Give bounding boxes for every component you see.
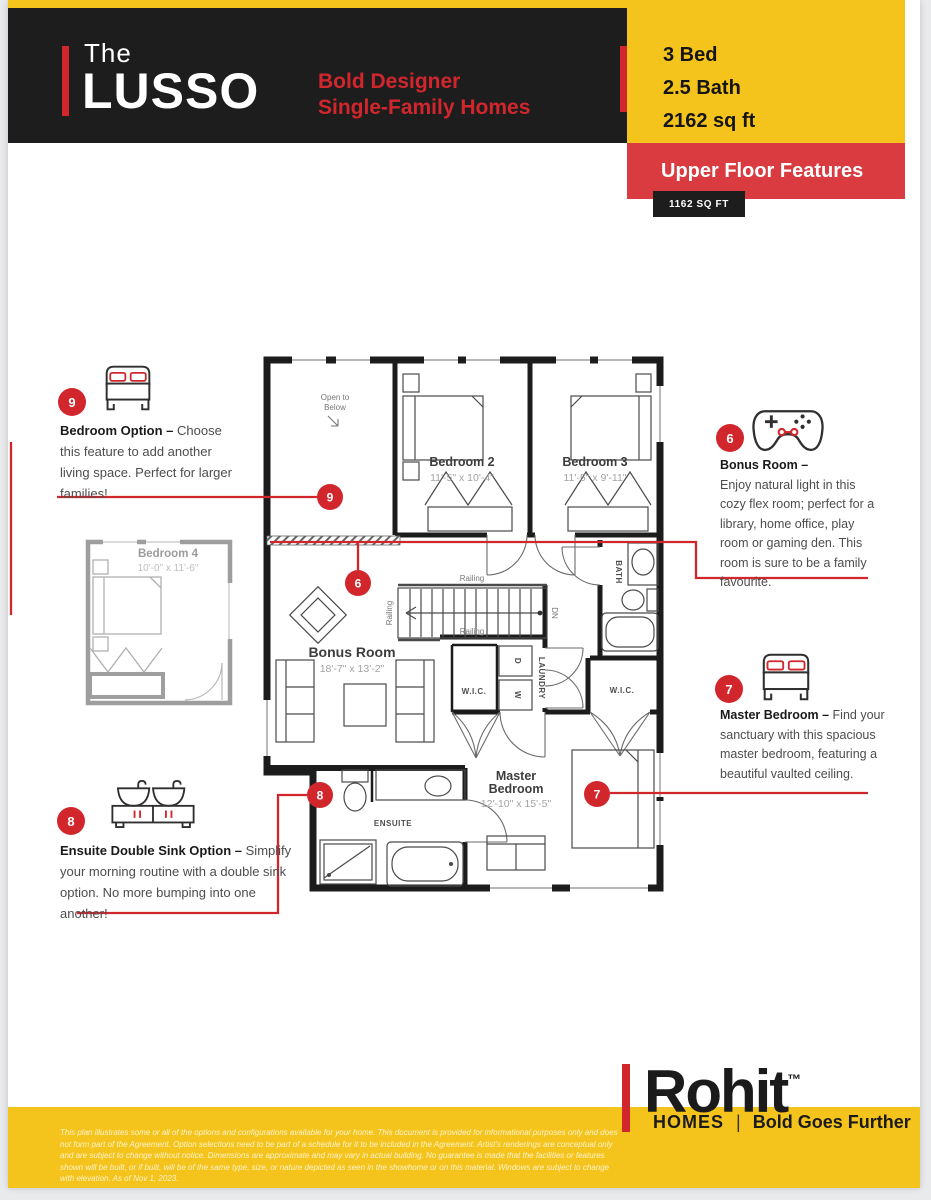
ensuite-label: ENSUITE: [374, 819, 412, 828]
master-dims: 12'-10" x 15'-5": [481, 798, 552, 810]
callout-8-badge: 8: [57, 807, 85, 835]
logo-divider: |: [736, 1112, 741, 1133]
bedroom4-label: Bedroom 4: [138, 548, 199, 560]
floor-sqft-value: 1162 SQ FT: [669, 199, 729, 210]
tagline-line-1: Bold Designer: [318, 69, 530, 95]
marker-9: 9: [327, 491, 334, 505]
spec-box: 3 Bed 2.5 Bath 2162 sq ft: [627, 5, 905, 143]
callout-7-badge: 7: [715, 675, 743, 703]
callout-6-badge: 6: [716, 424, 744, 452]
callout-9-title: Bedroom Option –: [60, 423, 173, 438]
bonus-dims: 18'-7" x 13'-2": [320, 663, 385, 675]
bedroom2-dims: 11'-5" x 10'-4": [430, 472, 494, 484]
brand-tagline: Bold Designer Single-Family Homes: [318, 69, 530, 121]
marker-8: 8: [317, 789, 324, 803]
section-title: Upper Floor Features: [661, 160, 863, 183]
bed-icon: [755, 652, 817, 702]
bedroom4-dims: 10'-0" x 11'-6": [138, 563, 199, 574]
railing-left-label: Railing: [385, 601, 394, 625]
master-label-2: Bedroom: [489, 782, 544, 796]
disclaimer-text: This plan illustrates some or all of the…: [60, 1127, 620, 1185]
dn-label: DN: [550, 607, 559, 619]
optional-wall-hatch: [267, 536, 400, 545]
bedroom2-label: Bedroom 2: [429, 455, 494, 469]
callout-6-body: Enjoy natural light in this cozy flex ro…: [720, 478, 874, 590]
bedroom4-inset: Bedroom 4 10'-0" x 11'-6": [88, 538, 233, 703]
callout-7-title: Master Bedroom –: [720, 708, 829, 722]
plan-labels: Open to Below Bedroom 2 11'-5" x 10'-4" …: [308, 393, 634, 828]
laundry-label: LAUNDRY: [537, 657, 546, 699]
logo-tm: ™: [787, 1071, 801, 1087]
plan-windows: [262, 355, 665, 893]
logo-tagline: Bold Goes Further: [753, 1112, 911, 1133]
callout-8-number: 8: [67, 814, 74, 829]
callout-8-title: Ensuite Double Sink Option –: [60, 843, 242, 858]
bedroom3-label: Bedroom 3: [562, 455, 627, 469]
brand-name: LUSSO: [82, 62, 259, 120]
controller-icon: [750, 405, 826, 455]
callout-7-text: Master Bedroom – Find your sanctuary wit…: [720, 706, 888, 784]
wic-left-label: W.I.C.: [462, 687, 487, 696]
callout-6-title: Bonus Room –: [720, 456, 880, 476]
railing-bottom-label: Railing: [460, 627, 484, 636]
marker-6: 6: [355, 577, 362, 591]
wic-right-label: W.I.C.: [610, 686, 635, 695]
callout-6-number: 6: [726, 431, 733, 446]
callout-7-number: 7: [725, 682, 732, 697]
bath-label: BATH: [614, 560, 623, 584]
header: The LUSSO Bold Designer Single-Family Ho…: [8, 8, 627, 143]
down-arrow-icon: [328, 416, 338, 426]
bedroom3-dims: 11'-5" x 9'-11": [563, 472, 626, 484]
spec-sqft: 2162 sq ft: [663, 105, 755, 138]
open-below-line1: Open to: [321, 393, 350, 402]
spec-bath: 2.5 Bath: [663, 72, 755, 105]
washer-label: W: [513, 691, 522, 699]
header-accent-bar: [62, 46, 69, 116]
spec-bed: 3 Bed: [663, 39, 755, 72]
bonus-label: Bonus Room: [308, 644, 395, 660]
railing-top-label: Railing: [460, 574, 484, 583]
marker-7: 7: [594, 788, 601, 802]
callout-9-number: 9: [68, 395, 75, 410]
brochure-page: The LUSSO Bold Designer Single-Family Ho…: [8, 0, 920, 1188]
logo-subline: HOMES | Bold Goes Further: [653, 1112, 911, 1133]
spec-list: 3 Bed 2.5 Bath 2162 sq ft: [663, 39, 755, 138]
callout-9-text: Bedroom Option – Choose this feature to …: [60, 420, 242, 504]
callout-8-text: Ensuite Double Sink Option – Simplify yo…: [60, 840, 300, 924]
bed-icon: [99, 364, 157, 412]
master-label-1: Master: [496, 769, 536, 783]
logo-accent-bar: [622, 1064, 630, 1132]
logo-homes-text: HOMES: [653, 1112, 724, 1133]
dryer-label: D: [513, 658, 522, 664]
tagline-line-2: Single-Family Homes: [318, 95, 530, 121]
callout-6-text: Bonus Room – Enjoy natural light in this…: [720, 456, 880, 593]
spec-accent-bar: [620, 46, 627, 112]
callout-9-badge: 9: [58, 388, 86, 416]
open-below-line2: Below: [324, 403, 346, 412]
floor-sqft-badge: 1162 SQ FT: [653, 191, 745, 217]
double-sink-icon: [105, 780, 201, 828]
